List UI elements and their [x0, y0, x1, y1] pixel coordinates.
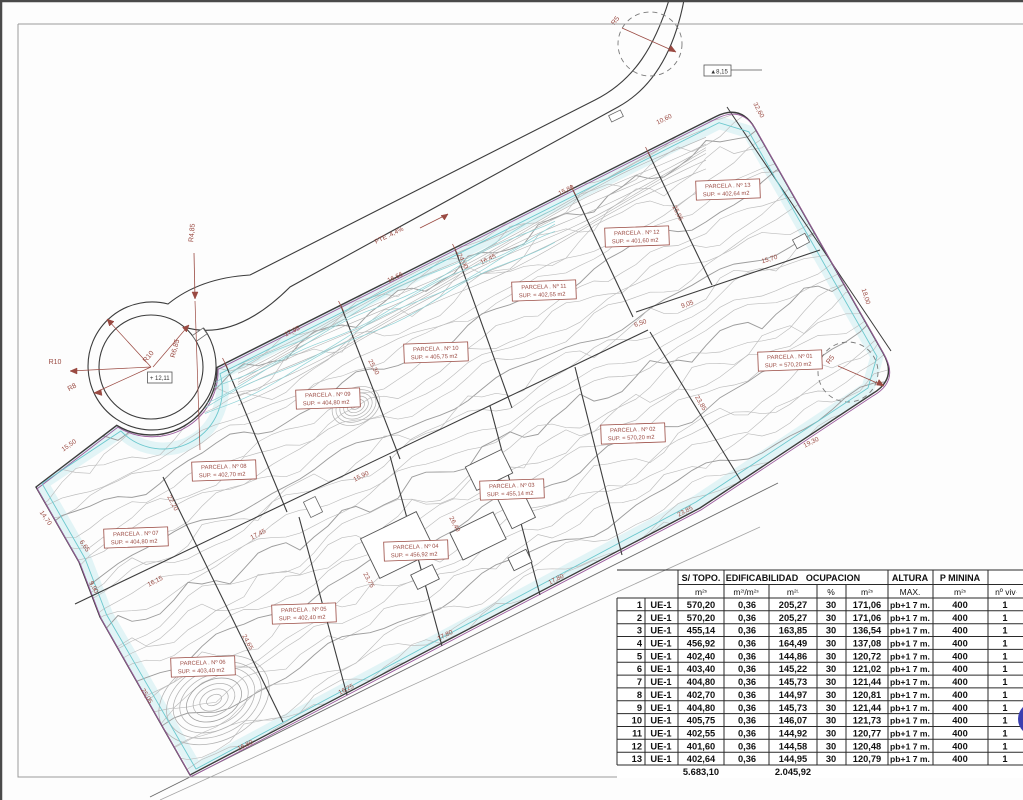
- svg-text:UE-1: UE-1: [650, 613, 671, 623]
- svg-text:P MININA: P MININA: [940, 573, 981, 583]
- svg-text:120,77: 120,77: [853, 729, 881, 739]
- svg-text:404,80: 404,80: [687, 677, 715, 687]
- svg-text:30: 30: [826, 690, 836, 700]
- svg-text:1: 1: [1002, 690, 1007, 700]
- svg-text:pb+1 7 m.: pb+1 7 m.: [890, 703, 930, 713]
- svg-text:120,72: 120,72: [853, 651, 881, 661]
- svg-text:+ 12,11: + 12,11: [150, 376, 170, 382]
- svg-text:405,75: 405,75: [687, 716, 715, 726]
- svg-text:5: 5: [637, 651, 642, 661]
- svg-text:3: 3: [637, 626, 642, 636]
- svg-text:400: 400: [952, 626, 968, 636]
- svg-text:pb+1 7 m.: pb+1 7 m.: [890, 729, 930, 739]
- svg-text:UE-1: UE-1: [650, 716, 671, 726]
- svg-text:570,20: 570,20: [687, 600, 715, 610]
- svg-text:171,06: 171,06: [853, 600, 881, 610]
- svg-text:121,44: 121,44: [853, 677, 882, 687]
- svg-text:570,20: 570,20: [687, 613, 715, 623]
- svg-text:UE-1: UE-1: [650, 639, 671, 649]
- svg-text:30: 30: [826, 677, 836, 687]
- svg-text:10: 10: [632, 716, 642, 726]
- svg-text:30: 30: [826, 613, 836, 623]
- svg-text:144,58: 144,58: [779, 741, 807, 751]
- svg-text:MAX.: MAX.: [900, 587, 921, 597]
- svg-text:▲8,15: ▲8,15: [710, 70, 728, 76]
- svg-text:13: 13: [632, 754, 642, 764]
- svg-text:400: 400: [952, 754, 968, 764]
- svg-text:145,73: 145,73: [779, 703, 807, 713]
- svg-text:5.683,10: 5.683,10: [683, 767, 719, 777]
- svg-text:402,64: 402,64: [687, 754, 716, 764]
- svg-text:S/ TOPO.: S/ TOPO.: [682, 573, 721, 583]
- svg-text:9: 9: [637, 703, 642, 713]
- svg-text:121,02: 121,02: [853, 664, 881, 674]
- svg-text:pb+1 7 m.: pb+1 7 m.: [890, 716, 930, 726]
- svg-text:400: 400: [952, 639, 968, 649]
- svg-text:pb+1 7 m.: pb+1 7 m.: [890, 626, 930, 636]
- svg-text:UE-1: UE-1: [650, 754, 671, 764]
- svg-text:144,97: 144,97: [779, 690, 807, 700]
- svg-text:pb+1 7 m.: pb+1 7 m.: [890, 651, 930, 661]
- svg-text:2.045,92: 2.045,92: [775, 767, 811, 777]
- svg-text:121,73: 121,73: [853, 716, 881, 726]
- svg-text:UE-1: UE-1: [650, 741, 671, 751]
- svg-text:164,49: 164,49: [779, 639, 807, 649]
- svg-text:pb+1 7 m.: pb+1 7 m.: [890, 741, 930, 751]
- svg-text:0,36: 0,36: [738, 613, 756, 623]
- svg-text:400: 400: [952, 651, 968, 661]
- svg-text:1: 1: [637, 600, 642, 610]
- svg-text:UE-1: UE-1: [650, 729, 671, 739]
- svg-text:144,95: 144,95: [779, 754, 807, 764]
- svg-text:pb+1 7 m.: pb+1 7 m.: [890, 690, 930, 700]
- svg-text:400: 400: [952, 677, 968, 687]
- svg-text:0,36: 0,36: [738, 600, 756, 610]
- svg-text:0,36: 0,36: [738, 703, 756, 713]
- svg-text:30: 30: [826, 729, 836, 739]
- svg-text:30: 30: [826, 741, 836, 751]
- svg-text:UE-1: UE-1: [650, 703, 671, 713]
- svg-text:120,48: 120,48: [853, 741, 881, 751]
- svg-text:455,14: 455,14: [687, 626, 716, 636]
- svg-text:%: %: [827, 587, 835, 597]
- svg-text:UE-1: UE-1: [650, 626, 671, 636]
- svg-text:0,36: 0,36: [738, 626, 756, 636]
- svg-text:30: 30: [826, 664, 836, 674]
- svg-text:12: 12: [632, 741, 642, 751]
- svg-text:1: 1: [1002, 754, 1007, 764]
- svg-text:120,79: 120,79: [853, 754, 881, 764]
- svg-text:400: 400: [952, 716, 968, 726]
- svg-text:0,36: 0,36: [738, 664, 756, 674]
- svg-text:1: 1: [1002, 651, 1007, 661]
- svg-text:UE-1: UE-1: [650, 664, 671, 674]
- svg-text:136,54: 136,54: [853, 626, 882, 636]
- svg-text:121,44: 121,44: [853, 703, 882, 713]
- svg-text:pb+1 7 m.: pb+1 7 m.: [890, 754, 930, 764]
- svg-text:0,36: 0,36: [738, 690, 756, 700]
- svg-text:400: 400: [952, 703, 968, 713]
- svg-text:11: 11: [632, 729, 642, 739]
- svg-text:1: 1: [1002, 626, 1007, 636]
- svg-text:1: 1: [1002, 664, 1007, 674]
- svg-text:R10: R10: [49, 359, 62, 366]
- svg-text:137,08: 137,08: [853, 639, 881, 649]
- svg-text:403,40: 403,40: [687, 664, 715, 674]
- svg-text:1: 1: [1002, 639, 1007, 649]
- svg-text:400: 400: [952, 729, 968, 739]
- svg-text:pb+1 7 m.: pb+1 7 m.: [890, 639, 930, 649]
- svg-text:0,36: 0,36: [738, 741, 756, 751]
- svg-text:400: 400: [952, 664, 968, 674]
- svg-text:1: 1: [1002, 729, 1007, 739]
- svg-text:205,27: 205,27: [779, 600, 807, 610]
- svg-text:400: 400: [952, 613, 968, 623]
- svg-text:1: 1: [1002, 677, 1007, 687]
- svg-text:400: 400: [952, 741, 968, 751]
- svg-text:7: 7: [637, 677, 642, 687]
- svg-text:EDIFICABILIDAD: EDIFICABILIDAD: [726, 573, 799, 583]
- svg-text:146,07: 146,07: [779, 716, 807, 726]
- svg-text:163,85: 163,85: [779, 626, 807, 636]
- svg-text:1: 1: [1002, 716, 1007, 726]
- svg-text:0,36: 0,36: [738, 639, 756, 649]
- svg-text:8: 8: [637, 690, 642, 700]
- svg-text:205,27: 205,27: [779, 613, 807, 623]
- svg-text:400: 400: [952, 690, 968, 700]
- svg-text:1: 1: [1002, 741, 1007, 751]
- svg-text:OCUPACION: OCUPACION: [806, 573, 860, 583]
- svg-text:1: 1: [1002, 703, 1007, 713]
- svg-text:30: 30: [826, 651, 836, 661]
- svg-text:0,36: 0,36: [738, 754, 756, 764]
- svg-text:2: 2: [637, 613, 642, 623]
- svg-text:402,55: 402,55: [687, 729, 715, 739]
- svg-text:30: 30: [826, 754, 836, 764]
- svg-text:145,22: 145,22: [779, 664, 807, 674]
- svg-text:30: 30: [826, 703, 836, 713]
- svg-text:0,36: 0,36: [738, 716, 756, 726]
- svg-text:nº viv.: nº viv.: [995, 587, 1017, 597]
- svg-text:pb+1 7 m.: pb+1 7 m.: [890, 613, 930, 623]
- svg-text:UE-1: UE-1: [650, 677, 671, 687]
- svg-text:144,86: 144,86: [779, 651, 807, 661]
- svg-text:171,06: 171,06: [853, 613, 881, 623]
- svg-text:1: 1: [1002, 600, 1007, 610]
- svg-text:120,81: 120,81: [853, 690, 881, 700]
- svg-text:UE-1: UE-1: [650, 651, 671, 661]
- svg-text:30: 30: [826, 600, 836, 610]
- svg-text:404,80: 404,80: [687, 703, 715, 713]
- svg-text:0,36: 0,36: [738, 651, 756, 661]
- svg-text:0,36: 0,36: [738, 677, 756, 687]
- svg-text:UE-1: UE-1: [650, 600, 671, 610]
- svg-text:pb+1 7 m.: pb+1 7 m.: [890, 677, 930, 687]
- svg-text:30: 30: [826, 639, 836, 649]
- svg-text:402,40: 402,40: [687, 651, 715, 661]
- svg-text:6: 6: [637, 664, 642, 674]
- svg-text:400: 400: [952, 600, 968, 610]
- svg-text:4: 4: [637, 639, 643, 649]
- svg-text:456,92: 456,92: [687, 639, 715, 649]
- svg-text:144,92: 144,92: [779, 729, 807, 739]
- svg-text:30: 30: [826, 626, 836, 636]
- svg-text:30: 30: [826, 716, 836, 726]
- svg-text:UE-1: UE-1: [650, 690, 671, 700]
- svg-text:401,60: 401,60: [687, 741, 715, 751]
- svg-text:pb+1 7 m.: pb+1 7 m.: [890, 600, 930, 610]
- svg-text:ALTURA: ALTURA: [892, 573, 929, 583]
- svg-text:pb+1 7 m.: pb+1 7 m.: [890, 664, 930, 674]
- svg-text:0,36: 0,36: [738, 729, 756, 739]
- svg-text:1: 1: [1002, 613, 1007, 623]
- svg-text:402,70: 402,70: [687, 690, 715, 700]
- svg-text:145,73: 145,73: [779, 677, 807, 687]
